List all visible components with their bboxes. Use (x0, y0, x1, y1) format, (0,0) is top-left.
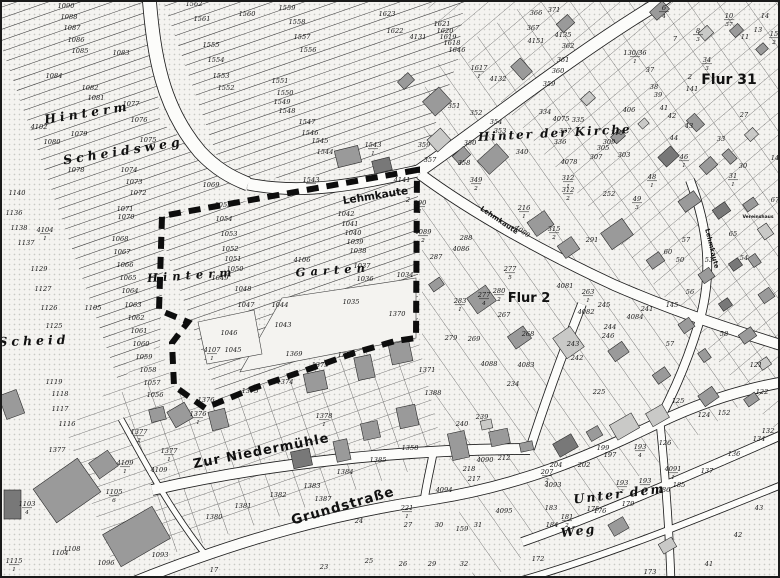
parcel-number: 350 (464, 139, 477, 147)
parcel-number: 4075 (552, 115, 570, 123)
parcel-number-denominator: 1 (586, 298, 590, 304)
parcel-number: 279 (444, 334, 458, 342)
parcel-number-denominator: 6 (112, 498, 116, 504)
parcel-number: 307 (590, 153, 603, 161)
parcel-number: 1057 (144, 379, 162, 387)
parcel-number: 1046 (221, 329, 238, 337)
parcel-number-denominator: 1 (405, 514, 409, 520)
parcel-number-denominator: 4 (637, 453, 642, 459)
parcel-number: 4095 (495, 507, 513, 515)
parcel-number: 29 (427, 560, 436, 568)
parcel-number: 1066 (117, 261, 134, 269)
parcel-number: 263 (581, 288, 595, 296)
parcel-number: 1059 (136, 353, 153, 361)
street-label: Flur 31 (701, 72, 757, 88)
building (2, 390, 25, 420)
parcel-number: 1072 (130, 189, 147, 197)
parcel-number: 141 (686, 85, 699, 93)
road-surface (530, 304, 582, 449)
parcel-number-denominator: 2 (551, 235, 556, 241)
parcel-number: 1388 (425, 389, 442, 397)
parcel-number-denominator: 1 (12, 567, 16, 573)
parcel-number: 1080 (44, 138, 61, 146)
parcel-number: 1138 (11, 224, 28, 232)
parcel-number: 58 (720, 330, 728, 338)
parcel-number-denominator: 1 (731, 182, 735, 188)
building (698, 348, 712, 362)
parcel-number: 4089 (414, 228, 432, 236)
parcel-number-denominator: 1 (477, 74, 481, 80)
building (208, 408, 229, 431)
parcel-number: 4151 (527, 37, 545, 45)
parcel-number: 1552 (218, 84, 235, 92)
parcel-number: 4091 (664, 465, 682, 473)
parcel-number: 1375 (242, 387, 259, 395)
parcel-number-denominator: 1 (210, 356, 214, 362)
parcel-number-denominator: 1 (167, 457, 171, 463)
parcel-number: 48 (647, 173, 656, 181)
parcel-number: 315 (548, 225, 561, 233)
parcel-number: 60 (664, 248, 672, 256)
parcel-number: 1557 (294, 33, 312, 41)
parcel-number: 1544 (317, 148, 334, 156)
parcel-number: 1118 (52, 390, 69, 398)
parcel-number: 1371 (419, 366, 436, 374)
parcel-number: 4094 (435, 486, 453, 494)
parcel-number: 288 (459, 234, 473, 242)
parcel-number: 1116 (59, 420, 76, 428)
parcel-number: 290 (413, 199, 427, 207)
parcel-number: 27 (739, 111, 749, 119)
street-label: Vereinshaus (742, 214, 773, 220)
parcel-number: 26 (398, 560, 407, 568)
parcel-number: 366 (530, 9, 543, 17)
parcel-number-denominator: 1 (682, 163, 686, 169)
parcel-number: 1061 (131, 327, 148, 335)
building (712, 202, 731, 220)
parcel-number-denominator: 2 (308, 186, 313, 192)
building (638, 118, 649, 129)
building (743, 197, 759, 212)
parcel-number: 4086 (452, 245, 470, 253)
parcel-number: 1378 (316, 412, 333, 420)
parcel-number: 4090 (476, 456, 494, 464)
parcel-number: 173 (644, 568, 657, 576)
parcel-number: 361 (557, 56, 570, 64)
parcel-number: 218 (462, 465, 476, 473)
parcel-number-denominator: 2 (496, 297, 501, 303)
parcel-number: 1381 (235, 502, 252, 510)
parcel-number: 34 (703, 56, 711, 64)
parcel-number: 1554 (208, 56, 225, 64)
parcel-number: 4093 (544, 481, 562, 489)
parcel-number: 268 (521, 330, 535, 338)
parcel-number: 54 (740, 254, 748, 262)
parcel-number: 277 (477, 291, 491, 299)
parcel-number: 216 (517, 204, 531, 212)
parcel-number: 4082 (577, 308, 595, 316)
region-label: Scheid (2, 332, 70, 349)
parcel-number: 172 (532, 555, 545, 563)
parcel-number-denominator: 1 (458, 307, 462, 313)
parcel-number: 225 (592, 388, 606, 396)
parcel-number: 1559 (279, 4, 296, 12)
parcel-number: 1063 (125, 301, 142, 309)
parcel-number: 2 (687, 73, 692, 81)
parcel-number: 244 (603, 323, 617, 331)
parcel-number: 359 (418, 141, 431, 149)
parcel-number: 33 (717, 135, 725, 143)
parcel-number: 176 (594, 507, 607, 515)
parcel-number: 1048 (235, 285, 252, 293)
parcel-number: 1376 (190, 410, 207, 418)
building (581, 91, 596, 106)
parcel-number: 312 (562, 174, 575, 182)
parcel-number: 371 (548, 6, 561, 14)
parcel-number: 1069 (203, 181, 220, 189)
parcel-number: 1103 (19, 500, 36, 508)
parcel-number: 27 (403, 521, 413, 529)
parcel-number-denominator: 1 (123, 469, 127, 475)
parcel-number: 406 (622, 106, 636, 114)
parcel-number: 4109 (150, 466, 168, 474)
building (511, 58, 533, 80)
parcel-number: 269 (467, 335, 481, 343)
parcel-number: 4132 (489, 75, 507, 83)
parcel-number: 1377 (131, 428, 149, 436)
parcel-number: 1555 (203, 41, 220, 49)
parcel-number-denominator: 3 (635, 205, 639, 211)
parcel-number-denominator: 4 (661, 14, 666, 20)
building (556, 14, 575, 32)
parcel-number: 1086 (68, 36, 85, 44)
parcel-number: 241 (640, 305, 654, 313)
building (33, 458, 101, 523)
parcel-number: 1076 (131, 116, 148, 124)
parcel-number: 354 (490, 118, 503, 126)
building (757, 223, 773, 240)
parcel-number: 362 (562, 42, 575, 50)
parcel-number: 1055 (215, 201, 232, 209)
parcel-number-denominator: 3 (696, 37, 700, 43)
parcel-number: 193 (634, 443, 647, 451)
parcel-number: 1073 (126, 178, 143, 186)
parcel-number: 179 (622, 500, 635, 508)
parcel-number: 184 (546, 521, 559, 529)
parcel-number: 1137 (18, 239, 36, 247)
parcel-number: 1071 (117, 205, 134, 213)
parcel-number: 56 (686, 288, 694, 296)
building (608, 341, 629, 361)
parcel-number: 1105 (106, 488, 123, 496)
parcel-number-denominator: 4 (24, 510, 29, 516)
parcel-number: 183 (545, 504, 558, 512)
parcel-number: 1088 (61, 13, 78, 21)
parcel-number: 4135 (554, 31, 572, 39)
parcel-number-denominator: 1 (322, 422, 326, 428)
parcel-number: 1042 (338, 210, 355, 218)
parcel-number: 1039 (347, 238, 364, 246)
parcel-number: 8 (696, 27, 700, 35)
parcel-number: 32 (460, 560, 468, 568)
parcel-number: 31 (474, 521, 482, 529)
parcel-number: 1376 (198, 396, 215, 404)
parcel-number: 30 (739, 162, 747, 170)
parcel-number-denominator: 4 (481, 301, 486, 307)
parcel-number: 6 (662, 4, 666, 12)
parcel-number-denominator: 1 (43, 236, 47, 242)
parcel-number: 234 (506, 380, 520, 388)
building (334, 145, 361, 167)
parcel-number: 4081 (556, 282, 574, 290)
parcel-number: 17 (210, 566, 219, 574)
parcel-number-denominator: 5 (508, 275, 512, 281)
parcel-number: 360 (552, 67, 565, 75)
parcel-number: 136 (728, 450, 741, 458)
building (89, 450, 119, 479)
parcel-number: 1549 (274, 98, 291, 106)
parcel-number: 143 (771, 154, 780, 162)
parcel-number: 1060 (133, 340, 150, 348)
parcel-number: 181 (561, 513, 574, 521)
parcel-number: 1646 (449, 46, 466, 54)
parcel-number: 1125 (46, 322, 63, 330)
parcel-number: 1082 (82, 84, 99, 92)
parcel-number: 39 (654, 91, 662, 99)
parcel-number: 1556 (300, 46, 317, 54)
building (698, 25, 714, 40)
parcel-number: 267 (497, 311, 511, 319)
parcel-number: 1560 (239, 10, 256, 18)
parcel-number: 25 (364, 557, 373, 565)
parcel-number: 125 (672, 397, 685, 405)
parcel-number: 1546 (302, 129, 319, 137)
parcel-number: 1051 (225, 255, 242, 263)
parcel-number: 1370 (389, 310, 406, 318)
building (553, 434, 579, 457)
parcel-number: 1085 (72, 47, 89, 55)
parcel-number: 358 (458, 159, 471, 167)
parcel-number: 1054 (216, 215, 233, 223)
parcel-number: 121 (750, 361, 763, 369)
parcel-number: 283 (453, 297, 467, 305)
parcel-number: 24 (354, 517, 363, 525)
parcel-number-denominator: 2 (420, 238, 425, 244)
parcel-number: 1558 (289, 18, 306, 26)
parcel-number: 245 (597, 301, 611, 309)
parcel-number: 1038 (350, 247, 367, 255)
parcel-number: 1081 (88, 94, 105, 102)
parcel-number: 334 (539, 108, 552, 116)
region-label: Scheidsweg (62, 134, 185, 168)
cadastral-map-svg: 1090108810871086108510831084108210811077… (2, 2, 780, 578)
parcel-number: 137 (701, 467, 714, 475)
parcel-number: 1041 (342, 220, 359, 228)
parcel-number: 134 (753, 435, 766, 443)
parcel-number: 38 (650, 83, 658, 91)
parcel-number-denominator: 2 (136, 438, 141, 444)
parcel-number: 1547 (299, 118, 317, 126)
building (748, 253, 762, 267)
parcel-number: 65 (729, 230, 737, 238)
parcel-number: 4141 (393, 176, 411, 184)
parcel-number: 30 (435, 521, 443, 529)
parcel-number: 159 (456, 525, 469, 533)
region-label: Hinterm (42, 98, 131, 127)
building (477, 144, 508, 175)
parcel-number: 1062 (128, 314, 145, 322)
parcel-number: 305 (597, 144, 610, 152)
parcel-number: 49 (632, 195, 641, 203)
open-parcel-patch (198, 310, 262, 364)
building (519, 441, 534, 453)
parcel-number: 42 (667, 112, 676, 120)
parcel-number: 357 (424, 156, 437, 164)
parcel-number: 15 (770, 30, 778, 38)
parcel-number: 41 (659, 104, 668, 112)
cadastral-map-canvas: 1090108810871086108510831084108210811077… (0, 0, 780, 578)
parcel-number: 10 (725, 12, 733, 20)
parcel-number-denominator: 1 (371, 151, 375, 157)
parcel-number: 1543 (365, 141, 382, 149)
parcel-number: 1374 (277, 378, 294, 386)
parcel-number-denominator: 1 (522, 214, 526, 220)
parcel-number: 46 (679, 153, 688, 161)
parcel-number: 1377 (161, 447, 179, 455)
parcel-number: 1070 (118, 213, 135, 221)
building (658, 146, 679, 167)
parcel-number: 145 (666, 301, 679, 309)
parcel-number: 367 (527, 24, 540, 32)
parcel-number: 132 (762, 427, 775, 435)
parcel-number: 1068 (112, 235, 129, 243)
parcel-number: 1074 (121, 166, 138, 174)
parcel-number: 221 (400, 504, 414, 512)
street-label: Flur 2 (508, 291, 551, 306)
parcel-number: 126 (659, 439, 672, 447)
parcel-number: 57 (682, 236, 691, 244)
parcel-number: 1093 (152, 551, 169, 559)
parcel-number-denominator: 2 (473, 186, 478, 192)
parcel-number: 1562 (186, 2, 203, 8)
parcel-number-denominator: 37 (725, 22, 733, 28)
parcel-number: 1129 (31, 265, 48, 273)
building (698, 267, 715, 283)
parcel-number: 202 (577, 461, 591, 469)
parcel-number: 1119 (46, 378, 63, 386)
building (303, 370, 327, 393)
parcel-number-denominator: 2 (565, 196, 570, 202)
parcel-number: 277 (503, 265, 517, 273)
parcel-number: 1035 (343, 298, 360, 306)
parcel-number: 41 (704, 560, 713, 568)
parcel-number: 1056 (147, 391, 164, 399)
parcel-number: 67 (771, 196, 780, 204)
parcel-number-denominator: 1 (196, 420, 200, 426)
building (360, 420, 380, 440)
parcel-number-denominator: 2 (771, 40, 776, 46)
building (586, 425, 603, 441)
parcel-number: 1543 (303, 176, 320, 184)
parcel-number: 352 (470, 109, 483, 117)
parcel-number: 11 (741, 33, 749, 41)
parcel-number: 152 (718, 409, 731, 417)
parcel-number: 4078 (560, 158, 578, 166)
parcel-number: 1087 (64, 24, 82, 32)
parcel-number: 1358 (402, 444, 419, 452)
parcel-number: 252 (602, 190, 616, 198)
parcel-number: 287 (429, 253, 443, 261)
parcel-number: 37 (646, 66, 655, 74)
parcel-number: 291 (585, 236, 599, 244)
parcel-number: 1551 (272, 77, 289, 85)
parcel-number: 1045 (225, 346, 242, 354)
parcel-number: 7 (673, 35, 678, 43)
parcel-number: 4107 (203, 346, 222, 354)
parcel-number: 359 (543, 80, 556, 88)
parcel-number: 1622 (387, 27, 404, 35)
parcel-number: 335 (572, 116, 585, 124)
parcel-number: 44 (669, 134, 678, 142)
parcel-number: 1548 (279, 107, 296, 115)
parcel-number: 1079 (71, 130, 88, 138)
parcel-number: 246 (601, 332, 615, 340)
parcel-number: 1043 (275, 321, 292, 329)
parcel-number: 1083 (113, 49, 130, 57)
parcel-number: 1380 (206, 513, 223, 521)
parcel-number: 280 (492, 287, 506, 295)
building (699, 156, 718, 174)
parcel-number: 1140 (9, 189, 26, 197)
parcel-number: 4109 (116, 459, 134, 467)
parcel-number: 124 (698, 411, 711, 419)
parcel-number: 50 (676, 256, 684, 264)
parcel-number: 1384 (337, 468, 354, 476)
building (756, 43, 769, 56)
building (608, 517, 629, 537)
building (429, 277, 445, 292)
region-label: Weg (560, 521, 597, 540)
parcel-number: 351 (448, 102, 461, 110)
parcel-number: 340 (516, 148, 529, 156)
building (601, 218, 634, 249)
parcel-number: 303 (618, 151, 631, 159)
parcel-number: 1078 (68, 166, 85, 174)
parcel-number-denominator: 1 (650, 183, 654, 189)
parcel-number: 212 (497, 454, 511, 462)
parcel-number: 4131 (409, 33, 427, 41)
parcel-number: 1383 (304, 482, 321, 490)
parcel-number: 42 (733, 531, 742, 539)
building (354, 354, 375, 380)
building (646, 252, 665, 270)
parcel-number: 243 (566, 340, 580, 348)
parcel-number: 1372 (338, 351, 355, 359)
parcel-number: 43 (684, 122, 693, 130)
parcel-number: 1115 (6, 557, 23, 565)
building (396, 404, 419, 428)
parcel-number: 23 (319, 563, 328, 571)
parcel-number: 1096 (98, 559, 115, 567)
parcel-number: 1127 (35, 285, 53, 293)
parcel-number: 199 (597, 444, 610, 452)
parcel-number: 14 (761, 12, 769, 20)
parcel-number: 4106 (293, 256, 311, 264)
parcel-number: 1117 (52, 405, 70, 413)
parcel-number: 1090 (58, 2, 75, 10)
parcel-number-denominator: 1 (418, 209, 422, 215)
parcel-number: 4083 (517, 361, 535, 369)
